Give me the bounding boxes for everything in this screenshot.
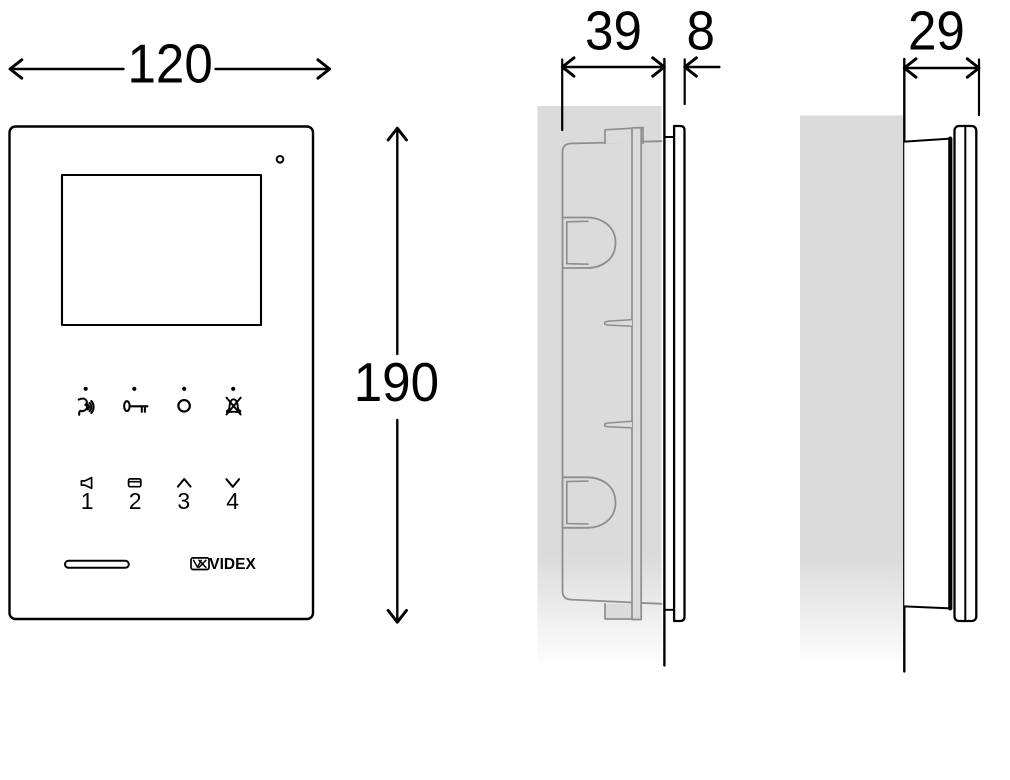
svg-text:8: 8 xyxy=(686,1,714,62)
svg-text:VIDEX: VIDEX xyxy=(209,556,256,573)
svg-text:1: 1 xyxy=(81,488,94,514)
svg-text:120: 120 xyxy=(127,34,212,95)
svg-text:29: 29 xyxy=(908,1,965,62)
svg-text:4: 4 xyxy=(226,488,239,514)
svg-text:190: 190 xyxy=(354,353,439,414)
svg-text:2: 2 xyxy=(129,488,142,514)
svg-text:39: 39 xyxy=(585,1,642,62)
svg-text:3: 3 xyxy=(177,488,190,514)
